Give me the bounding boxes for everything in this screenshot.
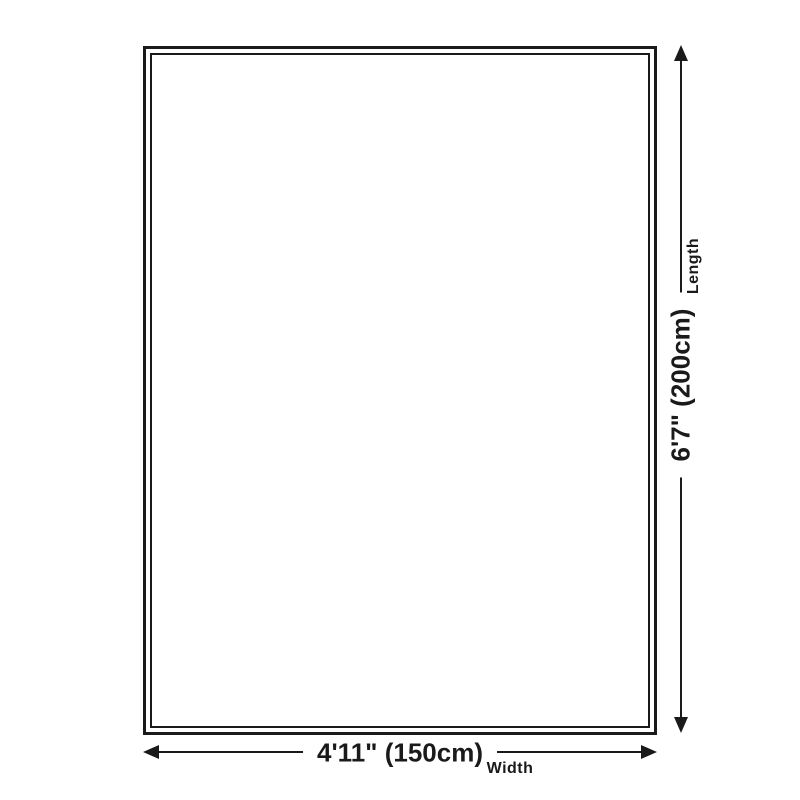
length-axis-label: Length — [685, 238, 703, 294]
arrow-right-icon — [641, 745, 657, 759]
width-value-label: 4'11" (150cm) — [303, 739, 497, 768]
length-value-label: 6'7" (200cm) — [667, 293, 696, 478]
arrow-down-icon — [674, 717, 688, 733]
width-axis-label: Width — [487, 760, 534, 778]
rug-outline — [143, 46, 657, 735]
dimension-diagram: 6'7" (200cm) Length 4'11" (150cm) Width — [0, 0, 800, 800]
rug-inner-border — [150, 53, 650, 728]
